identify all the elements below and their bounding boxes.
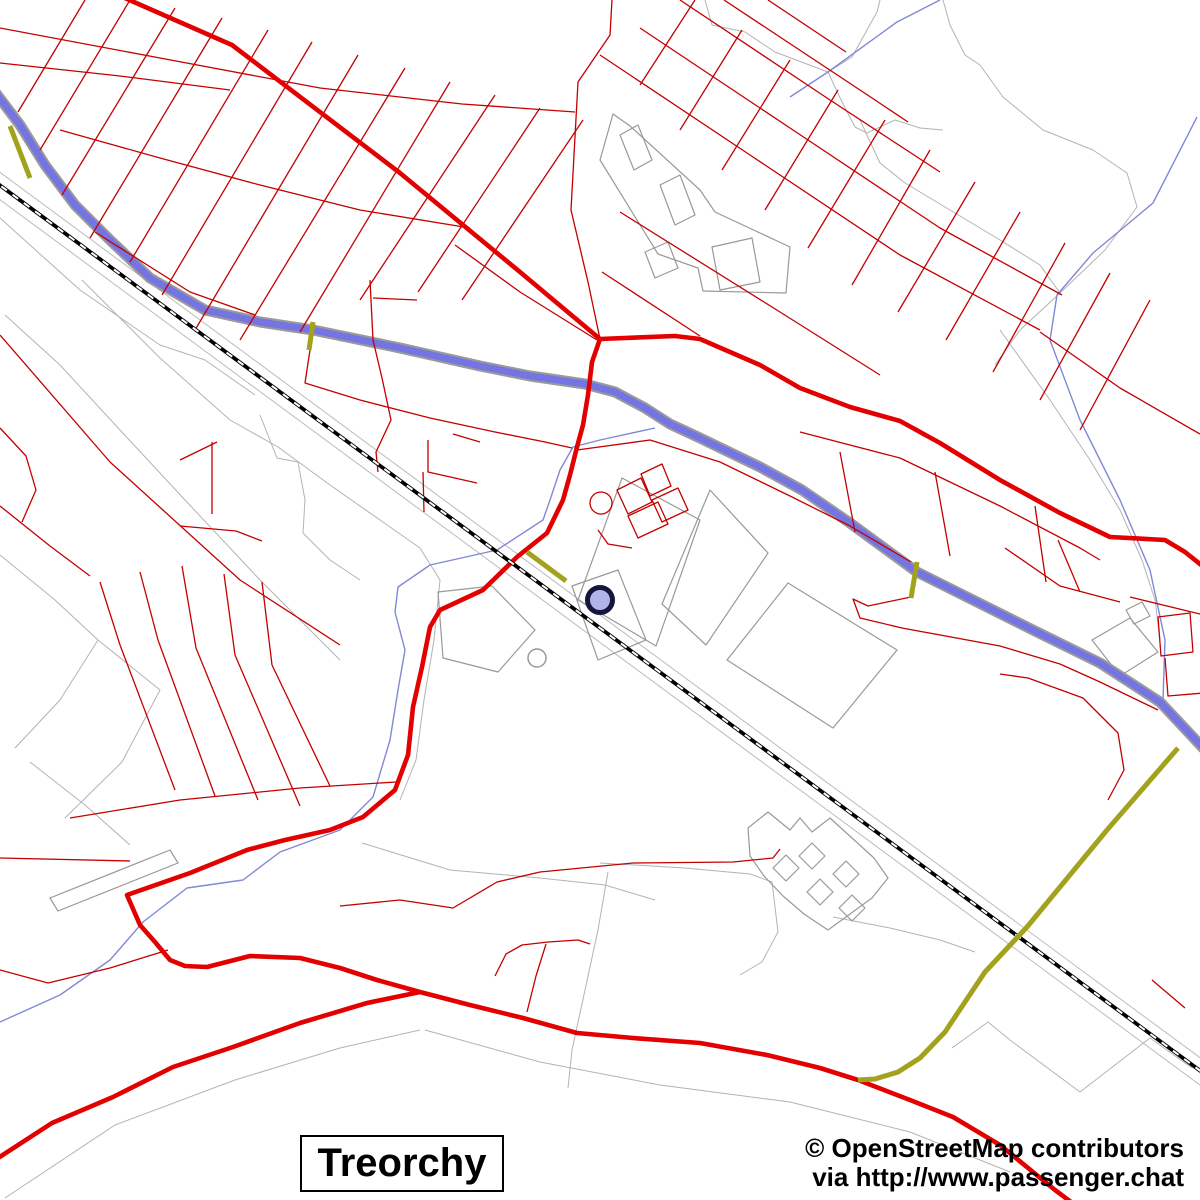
streets [0,0,1200,1012]
location-marker [588,588,613,613]
building-outlines [50,114,1158,930]
river [0,92,1200,750]
red-round-building [590,492,612,514]
place-name-text: Treorchy [318,1141,487,1186]
map-canvas [0,0,1200,1200]
map-screenshot: Treorchy © OpenStreetMap contributors vi… [0,0,1200,1200]
map-attribution: © OpenStreetMap contributors via http://… [805,1134,1184,1192]
place-name-label: Treorchy [300,1135,504,1192]
attribution-line-2: via http://www.passenger.chat [805,1163,1184,1192]
small-circle-outline [528,649,546,667]
attribution-line-1: © OpenStreetMap contributors [805,1134,1184,1163]
streams [0,0,1197,1022]
river-banks [0,92,1200,750]
